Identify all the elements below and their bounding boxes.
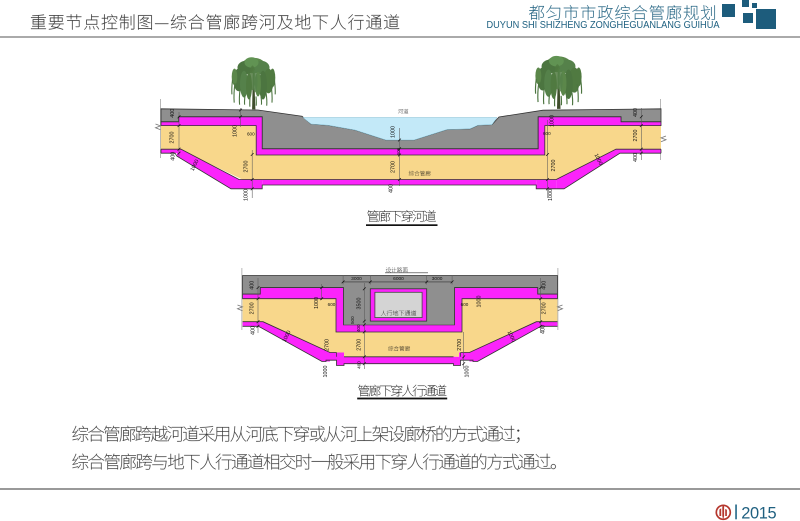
svg-text:6000: 6000 — [393, 276, 404, 282]
svg-text:400: 400 — [170, 109, 176, 118]
svg-text:1000: 1000 — [244, 189, 250, 201]
svg-text:3000: 3000 — [432, 276, 443, 282]
svg-text:400: 400 — [633, 153, 639, 162]
svg-text:1000: 1000 — [323, 366, 329, 378]
svg-text:400: 400 — [542, 281, 548, 290]
svg-text:500: 500 — [350, 316, 355, 324]
svg-text:400: 400 — [251, 326, 257, 335]
svg-text:2700: 2700 — [325, 339, 331, 351]
svg-text:3500: 3500 — [356, 298, 362, 310]
svg-text:400: 400 — [250, 281, 256, 290]
svg-text:2700: 2700 — [250, 302, 256, 314]
svg-text:2700: 2700 — [391, 161, 397, 173]
svg-text:2700: 2700 — [244, 161, 250, 173]
svg-text:1000: 1000 — [548, 189, 554, 201]
svg-text:1000: 1000 — [465, 366, 471, 378]
svg-text:400: 400 — [389, 184, 395, 193]
svg-text:1000: 1000 — [477, 296, 483, 308]
svg-text:1000: 1000 — [314, 297, 320, 309]
svg-text:1000: 1000 — [391, 126, 397, 138]
svg-text:600: 600 — [543, 131, 551, 136]
svg-text:1000: 1000 — [233, 125, 239, 137]
svg-text:2700: 2700 — [170, 132, 176, 144]
svg-text:600: 600 — [461, 302, 469, 307]
svg-text:2700: 2700 — [356, 339, 362, 351]
svg-text:400: 400 — [356, 361, 361, 369]
svg-text:2700: 2700 — [542, 302, 548, 314]
svg-text:2700: 2700 — [457, 339, 463, 351]
svg-text:3000: 3000 — [351, 276, 362, 282]
svg-text:400: 400 — [171, 152, 177, 161]
svg-text:600: 600 — [396, 147, 401, 155]
svg-text:600: 600 — [328, 302, 336, 307]
svg-text:400: 400 — [356, 324, 361, 332]
svg-text:2700: 2700 — [633, 130, 639, 142]
svg-text:400: 400 — [633, 108, 639, 117]
svg-text:2015: 2015 — [741, 504, 776, 521]
svg-text:2700: 2700 — [551, 160, 557, 172]
svg-text:400: 400 — [541, 325, 547, 334]
svg-text:1000: 1000 — [550, 115, 556, 127]
svg-text:DUYUN SHI SHIZHENG ZONGHEGUANL: DUYUN SHI SHIZHENG ZONGHEGUANLANG GUIHUA — [487, 20, 721, 31]
svg-text:600: 600 — [247, 131, 255, 136]
